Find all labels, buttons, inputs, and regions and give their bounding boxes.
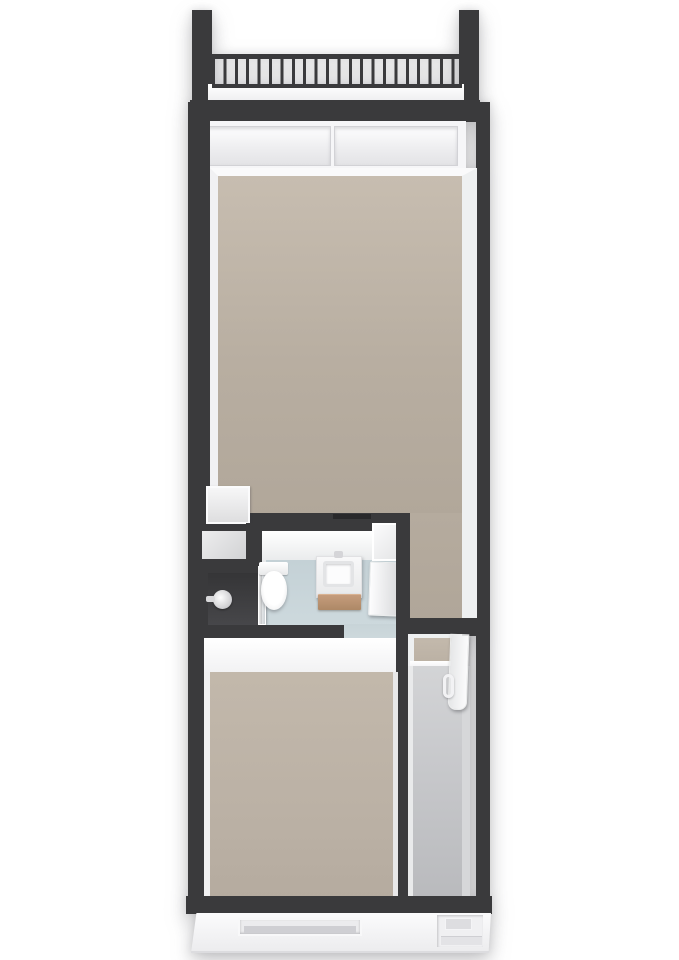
shower-head — [213, 590, 232, 609]
vanity-sink — [323, 561, 354, 587]
outer-wall-right — [476, 102, 490, 914]
hallway-door-handle — [443, 674, 454, 698]
vanity-drawer — [318, 594, 361, 610]
balcony-railing — [212, 54, 462, 88]
vanity-faucet — [334, 551, 343, 558]
facade-window-glass — [244, 926, 356, 933]
shower-arm — [206, 596, 215, 602]
facade-door-step — [441, 936, 482, 945]
rear-window-right-pane — [334, 126, 459, 166]
rear-window — [198, 121, 466, 171]
storage-cabinet — [206, 486, 250, 524]
toilet-bowl — [261, 571, 287, 610]
front-wall — [186, 896, 492, 914]
building — [0, 0, 679, 960]
hallway-door — [448, 634, 470, 711]
lower-room-floor — [204, 672, 398, 898]
main-room-east-strip — [410, 513, 477, 622]
rear-window-left-pane — [206, 126, 331, 166]
utility-nook-floor — [202, 531, 250, 561]
bathroom-south-wall-west — [196, 625, 344, 640]
vent-grille — [333, 514, 371, 519]
main-room-floor — [210, 168, 477, 515]
floorplan-canvas — [0, 0, 679, 960]
facade-door-panel — [445, 918, 472, 930]
rear-wall — [190, 100, 480, 122]
